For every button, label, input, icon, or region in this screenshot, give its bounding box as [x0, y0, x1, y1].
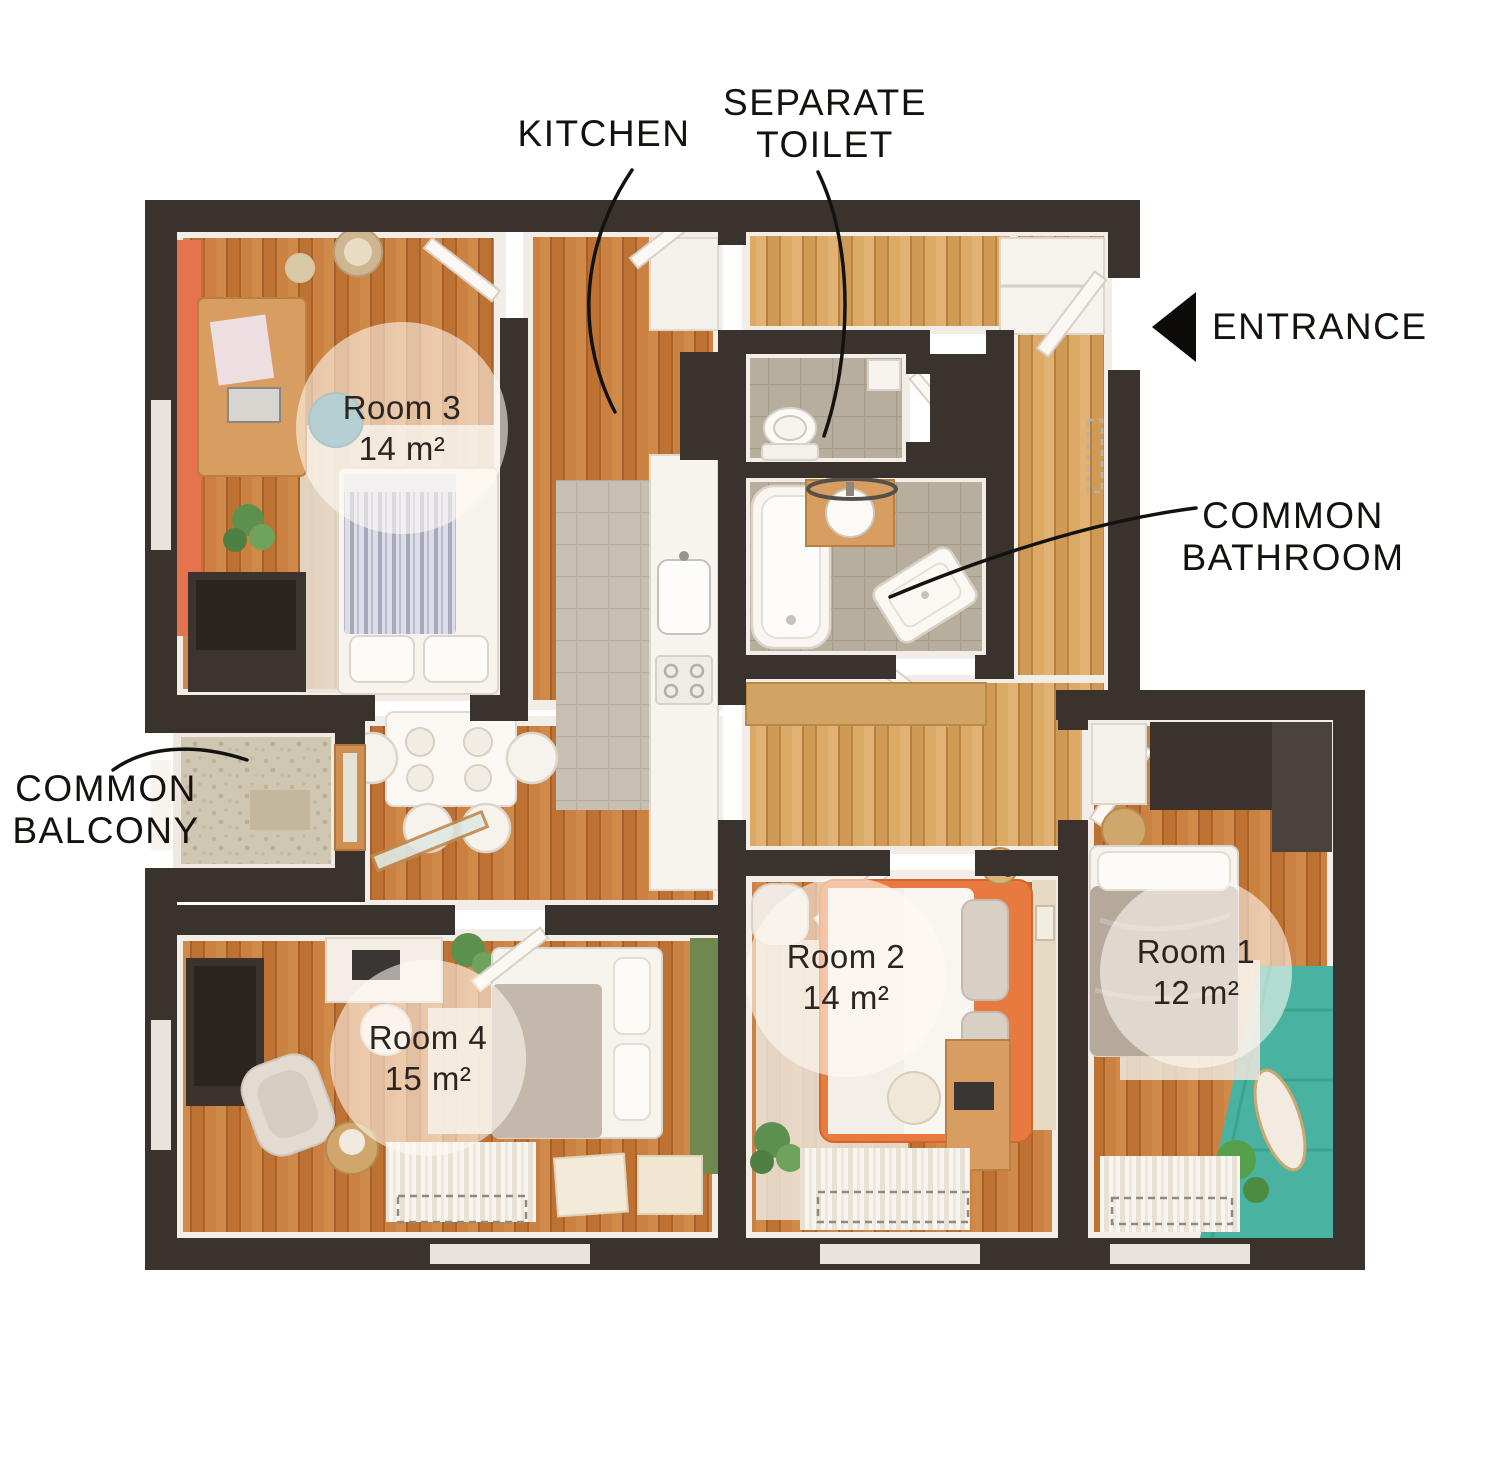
wall-toilet-right-b: [906, 442, 930, 462]
floor-plan-page: KITCHEN SEPARATE TOILET ENTRANCE COMMON …: [0, 0, 1500, 1465]
wall-room1-left-a: [1058, 690, 1088, 730]
toilet-tank: [762, 444, 818, 460]
room3-desk-papers: [210, 314, 274, 385]
separate-toilet-label: SEPARATE TOILET: [723, 82, 927, 166]
room4-window-bottom: [430, 1244, 590, 1264]
room4-label-badge: Room 4 15 m²: [330, 960, 526, 1156]
wall-room1-left-b: [1058, 820, 1088, 1238]
wall-top: [145, 200, 1140, 232]
wall-balcony-bottom-stub: [145, 868, 335, 902]
kitchen-label: KITCHEN: [518, 113, 691, 155]
wall-kitchen-right-a: [718, 232, 746, 245]
common-bathroom-line2: BATHROOM: [1181, 537, 1404, 579]
room2-pillow-top: [962, 900, 1008, 1000]
room4-green-accent-wall: [690, 938, 718, 1174]
wall-room4-top-a: [177, 905, 455, 935]
dining-table: [386, 712, 516, 806]
wall-right-lower: [1333, 690, 1365, 1270]
wall-room3-bottom-a: [177, 695, 375, 721]
dining-plate-4: [465, 765, 491, 791]
wall-room2-top-a: [746, 850, 890, 876]
room3-window: [151, 400, 171, 550]
wall-right-upper-b: [1108, 370, 1140, 720]
room4-name: Room 4: [369, 1021, 488, 1054]
wall-toilet-right-a: [906, 330, 930, 374]
room2-window-bottom: [820, 1244, 980, 1264]
room3-area: 14 m²: [359, 432, 446, 465]
room4-area: 15 m²: [385, 1062, 472, 1095]
room3-pouf: [285, 253, 315, 283]
room3-name: Room 3: [343, 391, 462, 424]
room4-floor-mat-2: [638, 1156, 702, 1214]
room1-plant-leaf3: [1243, 1177, 1269, 1203]
entrance-label: ENTRANCE: [1212, 306, 1428, 348]
common-bathroom-line1: COMMON: [1181, 495, 1404, 537]
room1-area: 12 m²: [1153, 976, 1240, 1009]
room2-plant-leaf3: [750, 1150, 774, 1174]
room4-tv-screen: [194, 966, 256, 1086]
room2-label-badge: Room 2 14 m²: [746, 877, 946, 1077]
dining-plate-2: [464, 728, 492, 756]
wall-room4-top-b: [545, 905, 718, 935]
room3-label-badge: Room 3 14 m²: [296, 322, 508, 534]
room3-laptop: [228, 388, 280, 422]
wall-room2-top-b: [975, 850, 1058, 876]
wall-bath-bottom-b: [975, 655, 1014, 679]
room1-name: Room 1: [1137, 935, 1256, 968]
wall-right-upper-a: [1108, 200, 1140, 278]
bathtub-drain: [786, 615, 796, 625]
wall-toilet-top: [746, 330, 906, 354]
room4-pillow-top: [614, 958, 650, 1034]
entrance-label-text: ENTRANCE: [1212, 306, 1428, 348]
room3-stool-top: [344, 238, 372, 266]
room3-plant-leaf2: [249, 524, 275, 550]
room4-pillow-bottom: [614, 1044, 650, 1120]
room3-plant-leaf3: [223, 528, 247, 552]
dining-plate-1: [406, 728, 434, 756]
kitchen-sink: [658, 560, 710, 634]
common-balcony-label: COMMON BALCONY: [12, 768, 199, 852]
room1-tv-cabinet: [1272, 722, 1332, 852]
dining-plate-3: [407, 765, 433, 791]
room1-window-bottom: [1110, 1244, 1250, 1264]
room3-pillow-right: [424, 636, 488, 682]
wall-room3-bottom-b: [470, 695, 528, 721]
common-balcony-line2: BALCONY: [12, 810, 199, 852]
room3-tv-screen: [196, 580, 296, 650]
separate-toilet-line2: TOILET: [723, 124, 927, 166]
room2-name: Room 2: [787, 940, 906, 973]
separate-toilet-line1: SEPARATE: [723, 82, 927, 124]
wall-toilet-bath: [746, 462, 986, 478]
wall-room2-room4: [718, 820, 746, 1238]
room4-floor-mat-1: [554, 1154, 628, 1217]
entrance-arrow-icon: [1152, 292, 1196, 362]
room2-laptop: [954, 1082, 994, 1110]
common-balcony-line1: COMMON: [12, 768, 199, 810]
common-bathroom-label: COMMON BATHROOM: [1181, 495, 1404, 579]
bathroom-faucet: [846, 482, 854, 496]
toilet-shelf: [868, 360, 900, 390]
balcony-window-glass: [343, 753, 357, 842]
wall-bath-bottom-a: [746, 655, 896, 679]
room4-window-left: [151, 1020, 171, 1150]
hallway-bench: [746, 683, 986, 725]
room1-curtains: [1100, 1156, 1240, 1232]
balcony-mat: [250, 790, 310, 830]
kitchen-stove: [656, 656, 712, 704]
room1-closet: [1092, 724, 1146, 804]
room4-basket-cloth: [339, 1129, 365, 1155]
room2-desk-chair: [888, 1072, 940, 1124]
wall-room3-kitchen: [500, 318, 528, 695]
room2-area: 14 m²: [803, 981, 890, 1014]
wall-room1-top: [1056, 690, 1365, 720]
floor-plan-drawing: [0, 0, 1500, 1465]
room2-plant-leaf2: [776, 1144, 804, 1172]
toilet-seat: [774, 416, 806, 440]
wall-bath-right: [986, 330, 1014, 655]
kitchen-faucet: [679, 551, 689, 561]
wall-shaft: [680, 352, 746, 460]
room2-wall-frame: [1036, 906, 1054, 940]
dining-chair-2: [507, 733, 557, 783]
room1-label-badge: Room 1 12 m²: [1100, 876, 1292, 1068]
room2-curtains: [800, 1148, 970, 1230]
room3-pillow-left: [350, 636, 414, 682]
kitchen-label-text: KITCHEN: [518, 113, 691, 155]
entry-floor: [746, 232, 1014, 330]
